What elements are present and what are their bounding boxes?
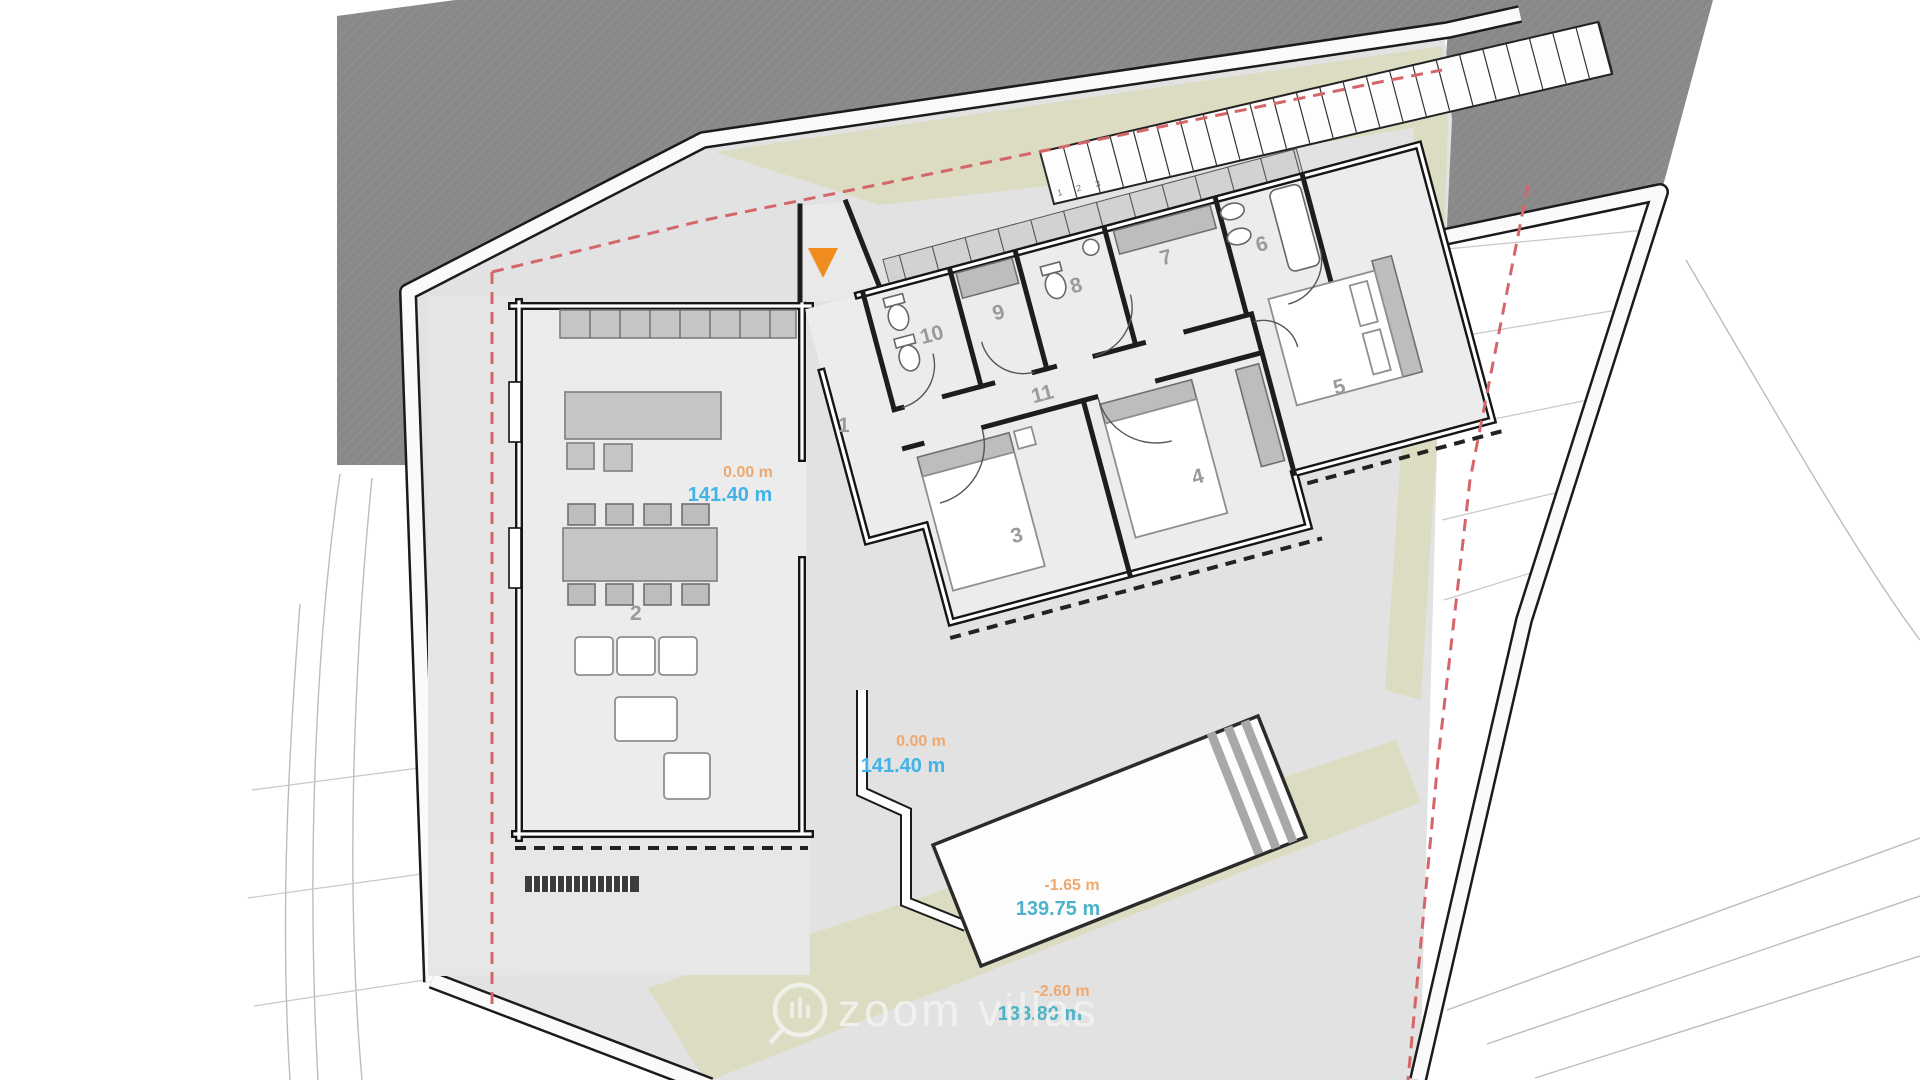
kitchen-island [565,392,721,439]
kitchen-stool [567,443,594,469]
elevation-absolute: 141.40 m [688,484,773,506]
kitchen-stool [604,444,632,471]
elevation-relative: 0.00 m [896,733,946,750]
deck-steps-marker [525,876,639,892]
left-wing [509,302,810,892]
door-leaf [509,528,521,588]
elevation-relative: 0.00 m [723,464,773,481]
kitchen-counter [560,310,796,338]
elevation-relative: -1.65 m [1044,877,1099,894]
watermark-text: zoom villas [838,984,1099,1036]
room-label-2: 2 [630,602,642,625]
dining-table [563,528,717,581]
room-label-1: 1 [838,414,850,437]
site-plan: 1 2 3 [0,0,1920,1080]
door-leaf [509,382,521,442]
south-terrace [430,840,810,975]
elevation-absolute: 139.75 m [1016,898,1101,920]
elevation-absolute: 141.40 m [861,755,946,777]
